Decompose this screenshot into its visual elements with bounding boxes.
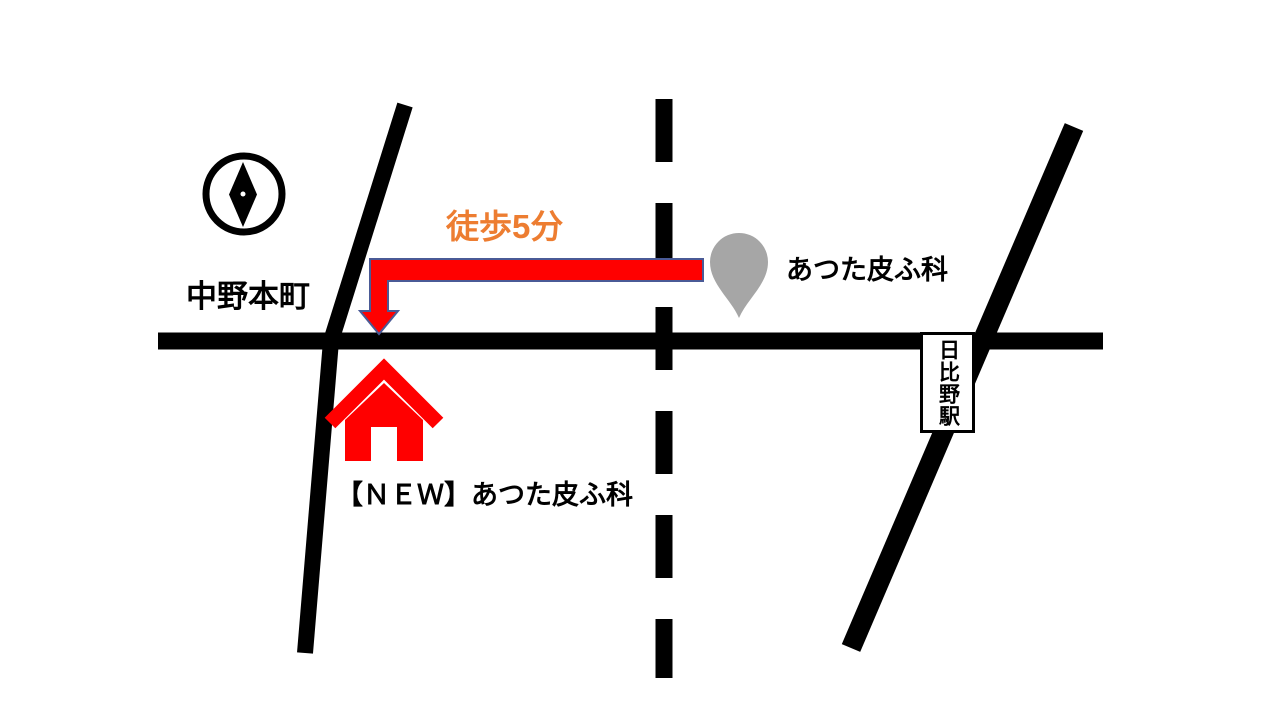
station-label: 日比野駅 <box>933 339 963 427</box>
map-pin-icon <box>710 233 768 318</box>
walk-time-label: 徒歩5分 <box>446 209 563 245</box>
access-map: 中野本町 徒歩5分 あつた皮ふ科 【ＮＥＷ】あつた皮ふ科 日比野駅 <box>0 0 1280 720</box>
map-graphics <box>0 0 1280 720</box>
compass-icon <box>206 156 282 232</box>
house-icon <box>330 369 438 461</box>
left-road-lower <box>305 341 331 653</box>
station-box: 日比野駅 <box>920 332 975 433</box>
road-name-label: 中野本町 <box>186 280 310 314</box>
new-clinic-label: 【ＮＥＷ】あつた皮ふ科 <box>336 481 633 511</box>
walk-route-arrow-icon <box>360 259 703 334</box>
house-door <box>371 427 397 461</box>
compass-center-dot <box>241 192 246 197</box>
left-road-upper <box>331 105 405 341</box>
old-clinic-label: あつた皮ふ科 <box>786 256 948 286</box>
